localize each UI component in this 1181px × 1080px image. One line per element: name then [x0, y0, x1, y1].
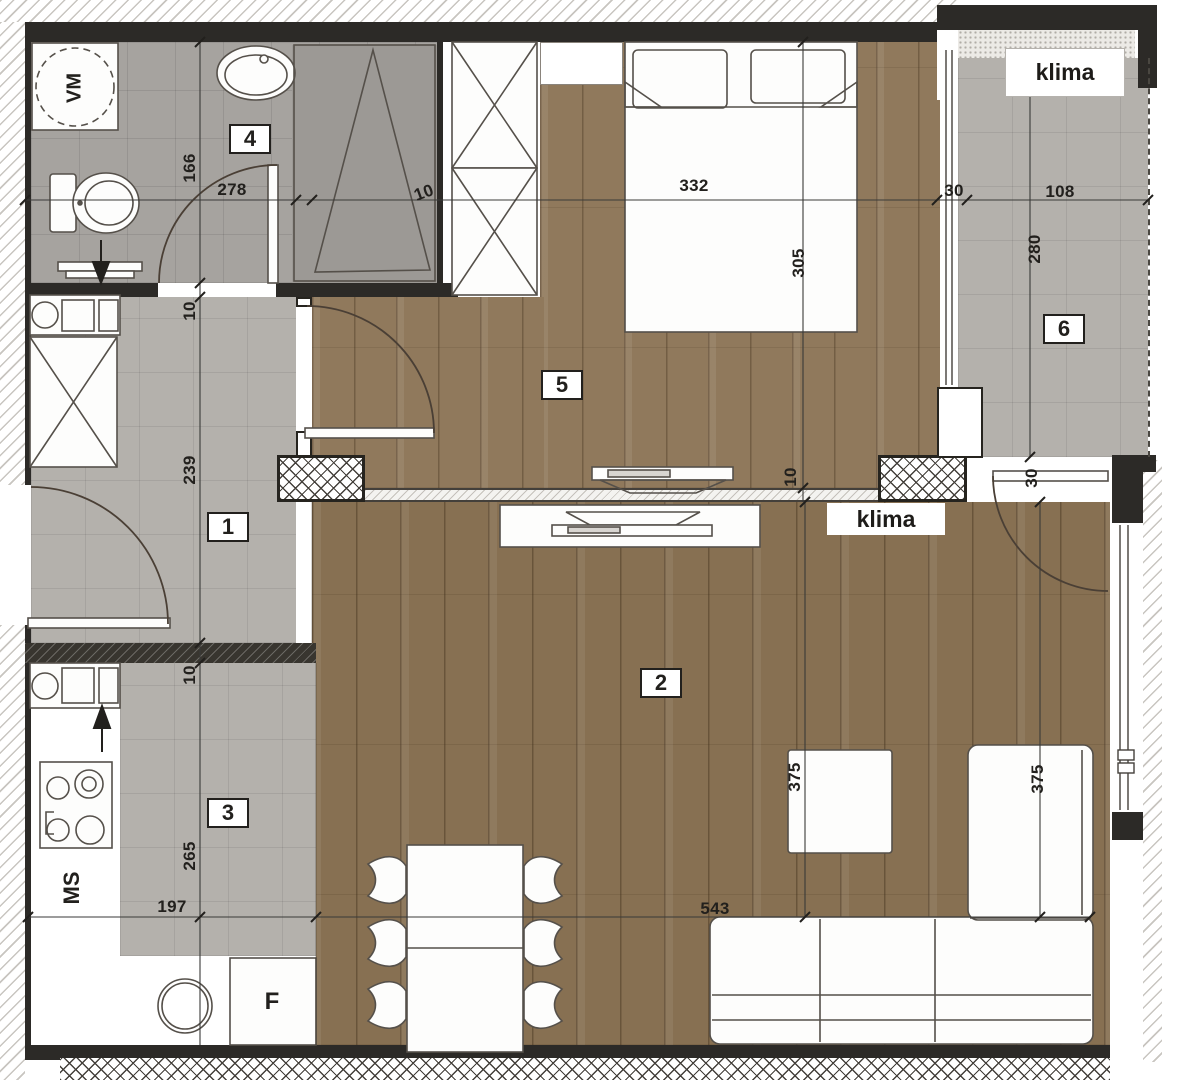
plan-graphics	[0, 0, 1181, 1080]
dimension-label: 10	[781, 467, 801, 487]
room-number-3: 3	[207, 798, 249, 828]
hallway-cabinet	[30, 295, 120, 335]
dimension-label: 30	[944, 181, 964, 201]
room-number-2: 2	[640, 668, 682, 698]
pillow	[633, 50, 727, 108]
dining-chair	[368, 857, 406, 904]
wardrobe-bedroom	[452, 42, 537, 295]
dimension-label: 375	[785, 762, 805, 791]
room-number-6: 6	[1043, 314, 1085, 344]
kitchen-round-sink	[158, 979, 212, 1033]
dimension-label: 278	[217, 180, 246, 200]
ac-label: klima	[857, 506, 916, 533]
tv-bedroom	[592, 467, 733, 493]
dimension-label: 239	[180, 455, 200, 484]
bedroom-door-arc	[307, 306, 434, 433]
ac-unit-living: klima	[827, 503, 945, 535]
room-number-4: 4	[229, 124, 271, 154]
room-number-5: 5	[541, 370, 583, 400]
balcony-door-leaf	[993, 471, 1108, 481]
fridge-label: F	[265, 988, 280, 1016]
dimension-label: 108	[1045, 182, 1074, 202]
bed	[625, 42, 857, 332]
ac-label: klima	[1036, 59, 1095, 86]
entry-door-leaf	[28, 618, 170, 628]
shower	[294, 45, 435, 281]
kitchen-arrow	[94, 706, 110, 752]
dishwasher-label: MS	[59, 872, 85, 905]
entry-door-arc	[31, 487, 168, 624]
bathroom-sink	[217, 46, 295, 100]
dining-chair	[368, 982, 406, 1029]
toilet	[50, 173, 139, 233]
washing-machine-label: VM	[64, 73, 87, 103]
dining-chair	[368, 920, 406, 967]
kitchen-sink-counter	[30, 663, 120, 708]
dining-chair	[524, 920, 562, 967]
bathroom-door-leaf	[268, 165, 278, 283]
tv-living	[500, 505, 760, 547]
wardrobe-hallway	[30, 337, 117, 467]
dimension-label: 305	[789, 248, 809, 277]
dimension-label: 543	[700, 899, 729, 919]
dimension-label: 265	[180, 841, 200, 870]
pillow	[751, 50, 845, 103]
dining-chair	[524, 857, 562, 904]
dimension-label: 332	[679, 176, 708, 196]
dimension-label: 30	[1022, 468, 1042, 488]
dimension-label: 197	[157, 897, 186, 917]
dimension-label: 166	[180, 153, 200, 182]
bedroom-door-leaf	[305, 428, 434, 438]
ac-unit-terrace: klima	[1005, 48, 1125, 97]
cooktop	[40, 762, 112, 848]
dimension-label: 10	[180, 665, 200, 685]
dimension-label: 280	[1025, 234, 1045, 263]
room-number-1: 1	[207, 512, 249, 542]
dining-table	[407, 845, 523, 1052]
dimension-label: 10	[180, 301, 200, 321]
dining-chair	[524, 982, 562, 1029]
floor-plan: klima klima VM MS F 12345616627810332301…	[0, 0, 1181, 1080]
dimension-label: 375	[1028, 764, 1048, 793]
balcony-door-arc	[993, 476, 1108, 591]
